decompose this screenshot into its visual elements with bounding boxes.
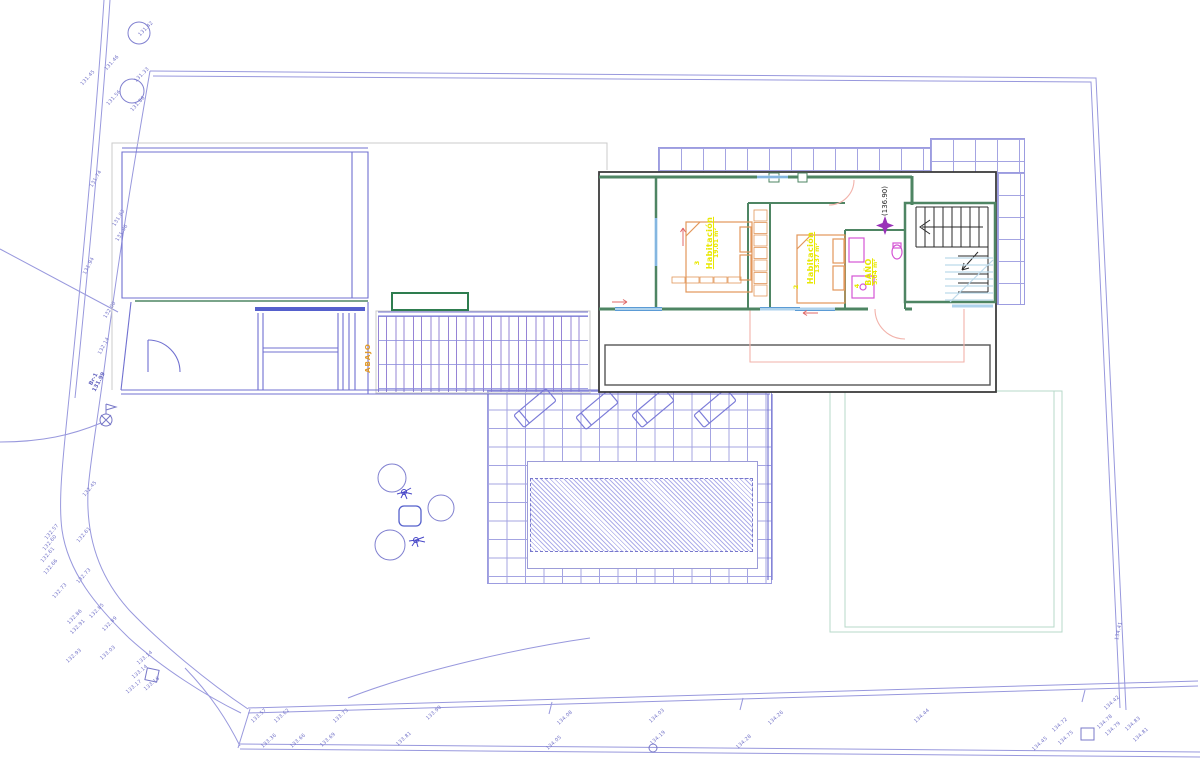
lower-floor-footprint: [830, 391, 1062, 632]
garden-table: [399, 506, 421, 526]
tree-icons: [120, 22, 454, 560]
cad-linework: [0, 0, 1200, 765]
window-band: [255, 307, 365, 311]
manhole-icon: [145, 668, 159, 682]
benchmark-icon: [100, 404, 116, 426]
site-plan-canvas: (136.90) ABAJO Br-1 131.99 131.42131.461…: [0, 0, 1200, 765]
survey-symbols: [100, 404, 1094, 752]
sun-loungers: [514, 388, 736, 429]
planter: [392, 293, 468, 310]
road-edges: [238, 681, 1200, 757]
survey-point-icon: [649, 744, 657, 752]
gray-outline: [112, 143, 607, 393]
manhole-icon: [1081, 728, 1094, 740]
